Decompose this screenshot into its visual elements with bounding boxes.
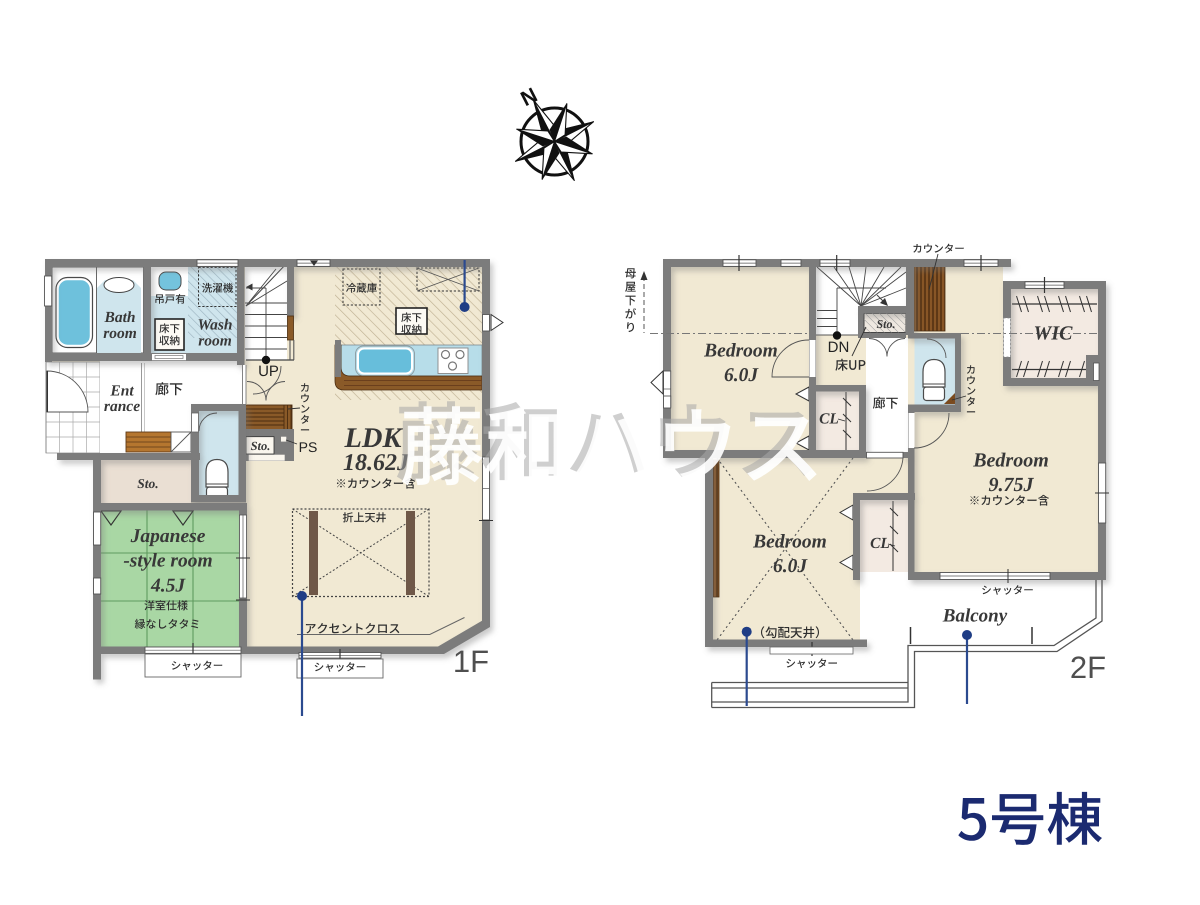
svg-text:9.75J: 9.75J [989,474,1035,496]
svg-text:Sto.: Sto. [137,476,158,491]
svg-text:UP: UP [258,363,279,380]
svg-text:Bath: Bath [103,309,135,326]
svg-text:Bedroom: Bedroom [752,532,827,553]
svg-text:2F: 2F [1070,650,1106,685]
svg-text:Japanese: Japanese [130,526,206,547]
svg-text:Balcony: Balcony [942,606,1008,627]
svg-text:WIC: WIC [1034,323,1074,345]
svg-text:Ent: Ent [109,383,134,400]
svg-text:Wash: Wash [197,317,232,334]
svg-text:Sto.: Sto. [251,439,271,453]
svg-text:room: room [198,333,232,350]
svg-text:Sto.: Sto. [876,317,895,331]
svg-text:CL: CL [870,535,890,552]
svg-text:rance: rance [104,398,140,415]
svg-text:PS: PS [299,439,318,455]
svg-text:4.5J: 4.5J [150,576,186,597]
svg-text:6.0J: 6.0J [773,556,808,577]
svg-text:room: room [103,325,137,342]
svg-text:CL: CL [819,411,839,428]
svg-text:6.0J: 6.0J [724,365,759,386]
svg-text:Bedroom: Bedroom [703,341,778,362]
svg-text:DN: DN [828,339,850,356]
svg-text:1F: 1F [453,644,489,679]
svg-text:-style room: -style room [123,551,212,572]
svg-text:Bedroom: Bedroom [972,450,1049,472]
